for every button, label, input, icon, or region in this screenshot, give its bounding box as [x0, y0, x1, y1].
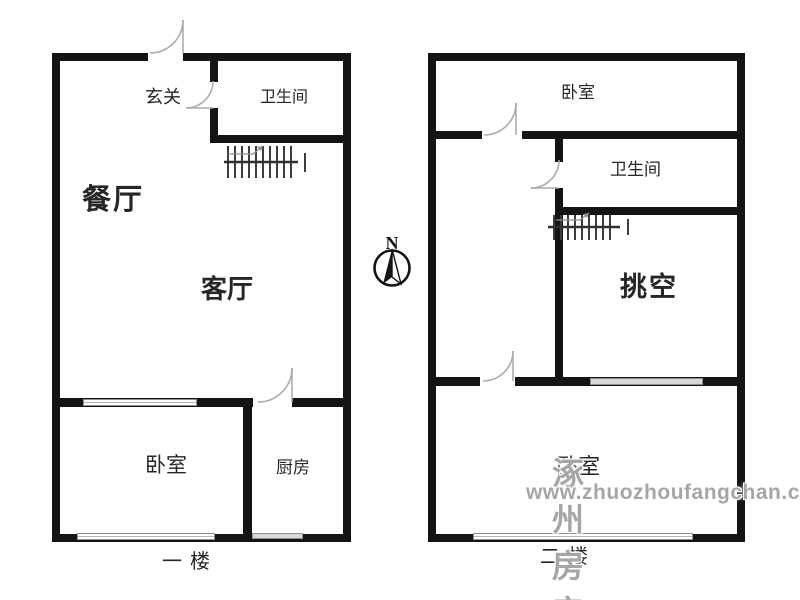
room-label-living: 客厅 — [201, 277, 253, 303]
room-label-kitchen: 厨房 — [276, 459, 310, 476]
room-label-bedroom-f2-top: 卧室 — [561, 84, 595, 101]
floor1-bedroom-kitchen-divider — [243, 398, 252, 534]
floor2-bedroom-wall-left — [436, 131, 482, 139]
room-label-void: 挑空 — [620, 274, 678, 301]
floor2-bathroom-bottom-wall — [555, 207, 737, 215]
floor2-mid-window — [590, 378, 703, 385]
floor2-bathroom-wall-upper — [555, 139, 563, 162]
compass-needle-light — [392, 249, 401, 284]
room-label-entry: 玄关 — [145, 88, 181, 106]
floor1-mid-window — [83, 399, 197, 406]
floor1-bathroom-bottom-wall — [210, 135, 343, 143]
floor1-bedroom-window — [77, 533, 215, 540]
watermark-site-name: 涿州房产网 — [552, 449, 587, 600]
floor1-entrance-door-icon — [150, 20, 183, 53]
compass-north-label: N — [386, 233, 399, 253]
floorplan-canvas: N 玄关 卫生间 餐厅 客厅 卧室 厨房 一楼 卧室 卫生间 挑空 卧室 二楼 … — [0, 0, 800, 600]
room-label-bathroom-f1: 卫生间 — [260, 90, 308, 106]
room-label-bathroom-f2: 卫生间 — [610, 161, 661, 178]
floor1-entrance-door-gap — [148, 53, 183, 61]
watermark-site-url: www.zhuozhoufangchan.com — [526, 481, 800, 505]
room-label-dining: 餐厅 — [82, 186, 144, 215]
floor2-lower-wall-left — [436, 377, 480, 386]
floor1-kitchen-window — [252, 533, 303, 539]
compass: N — [375, 233, 410, 286]
compass-circle — [375, 251, 410, 286]
compass-needle-dark — [383, 249, 392, 284]
floor1-mid-wall-right — [292, 398, 343, 407]
floor2-bathroom-wall-lower — [555, 188, 563, 378]
room-label-bedroom-f1: 卧室 — [145, 455, 187, 476]
floor2-bedroom-wall-right — [522, 131, 737, 139]
floor1-caption: 一楼 — [162, 552, 218, 572]
floor1-bathroom-wall-upper — [210, 53, 218, 82]
